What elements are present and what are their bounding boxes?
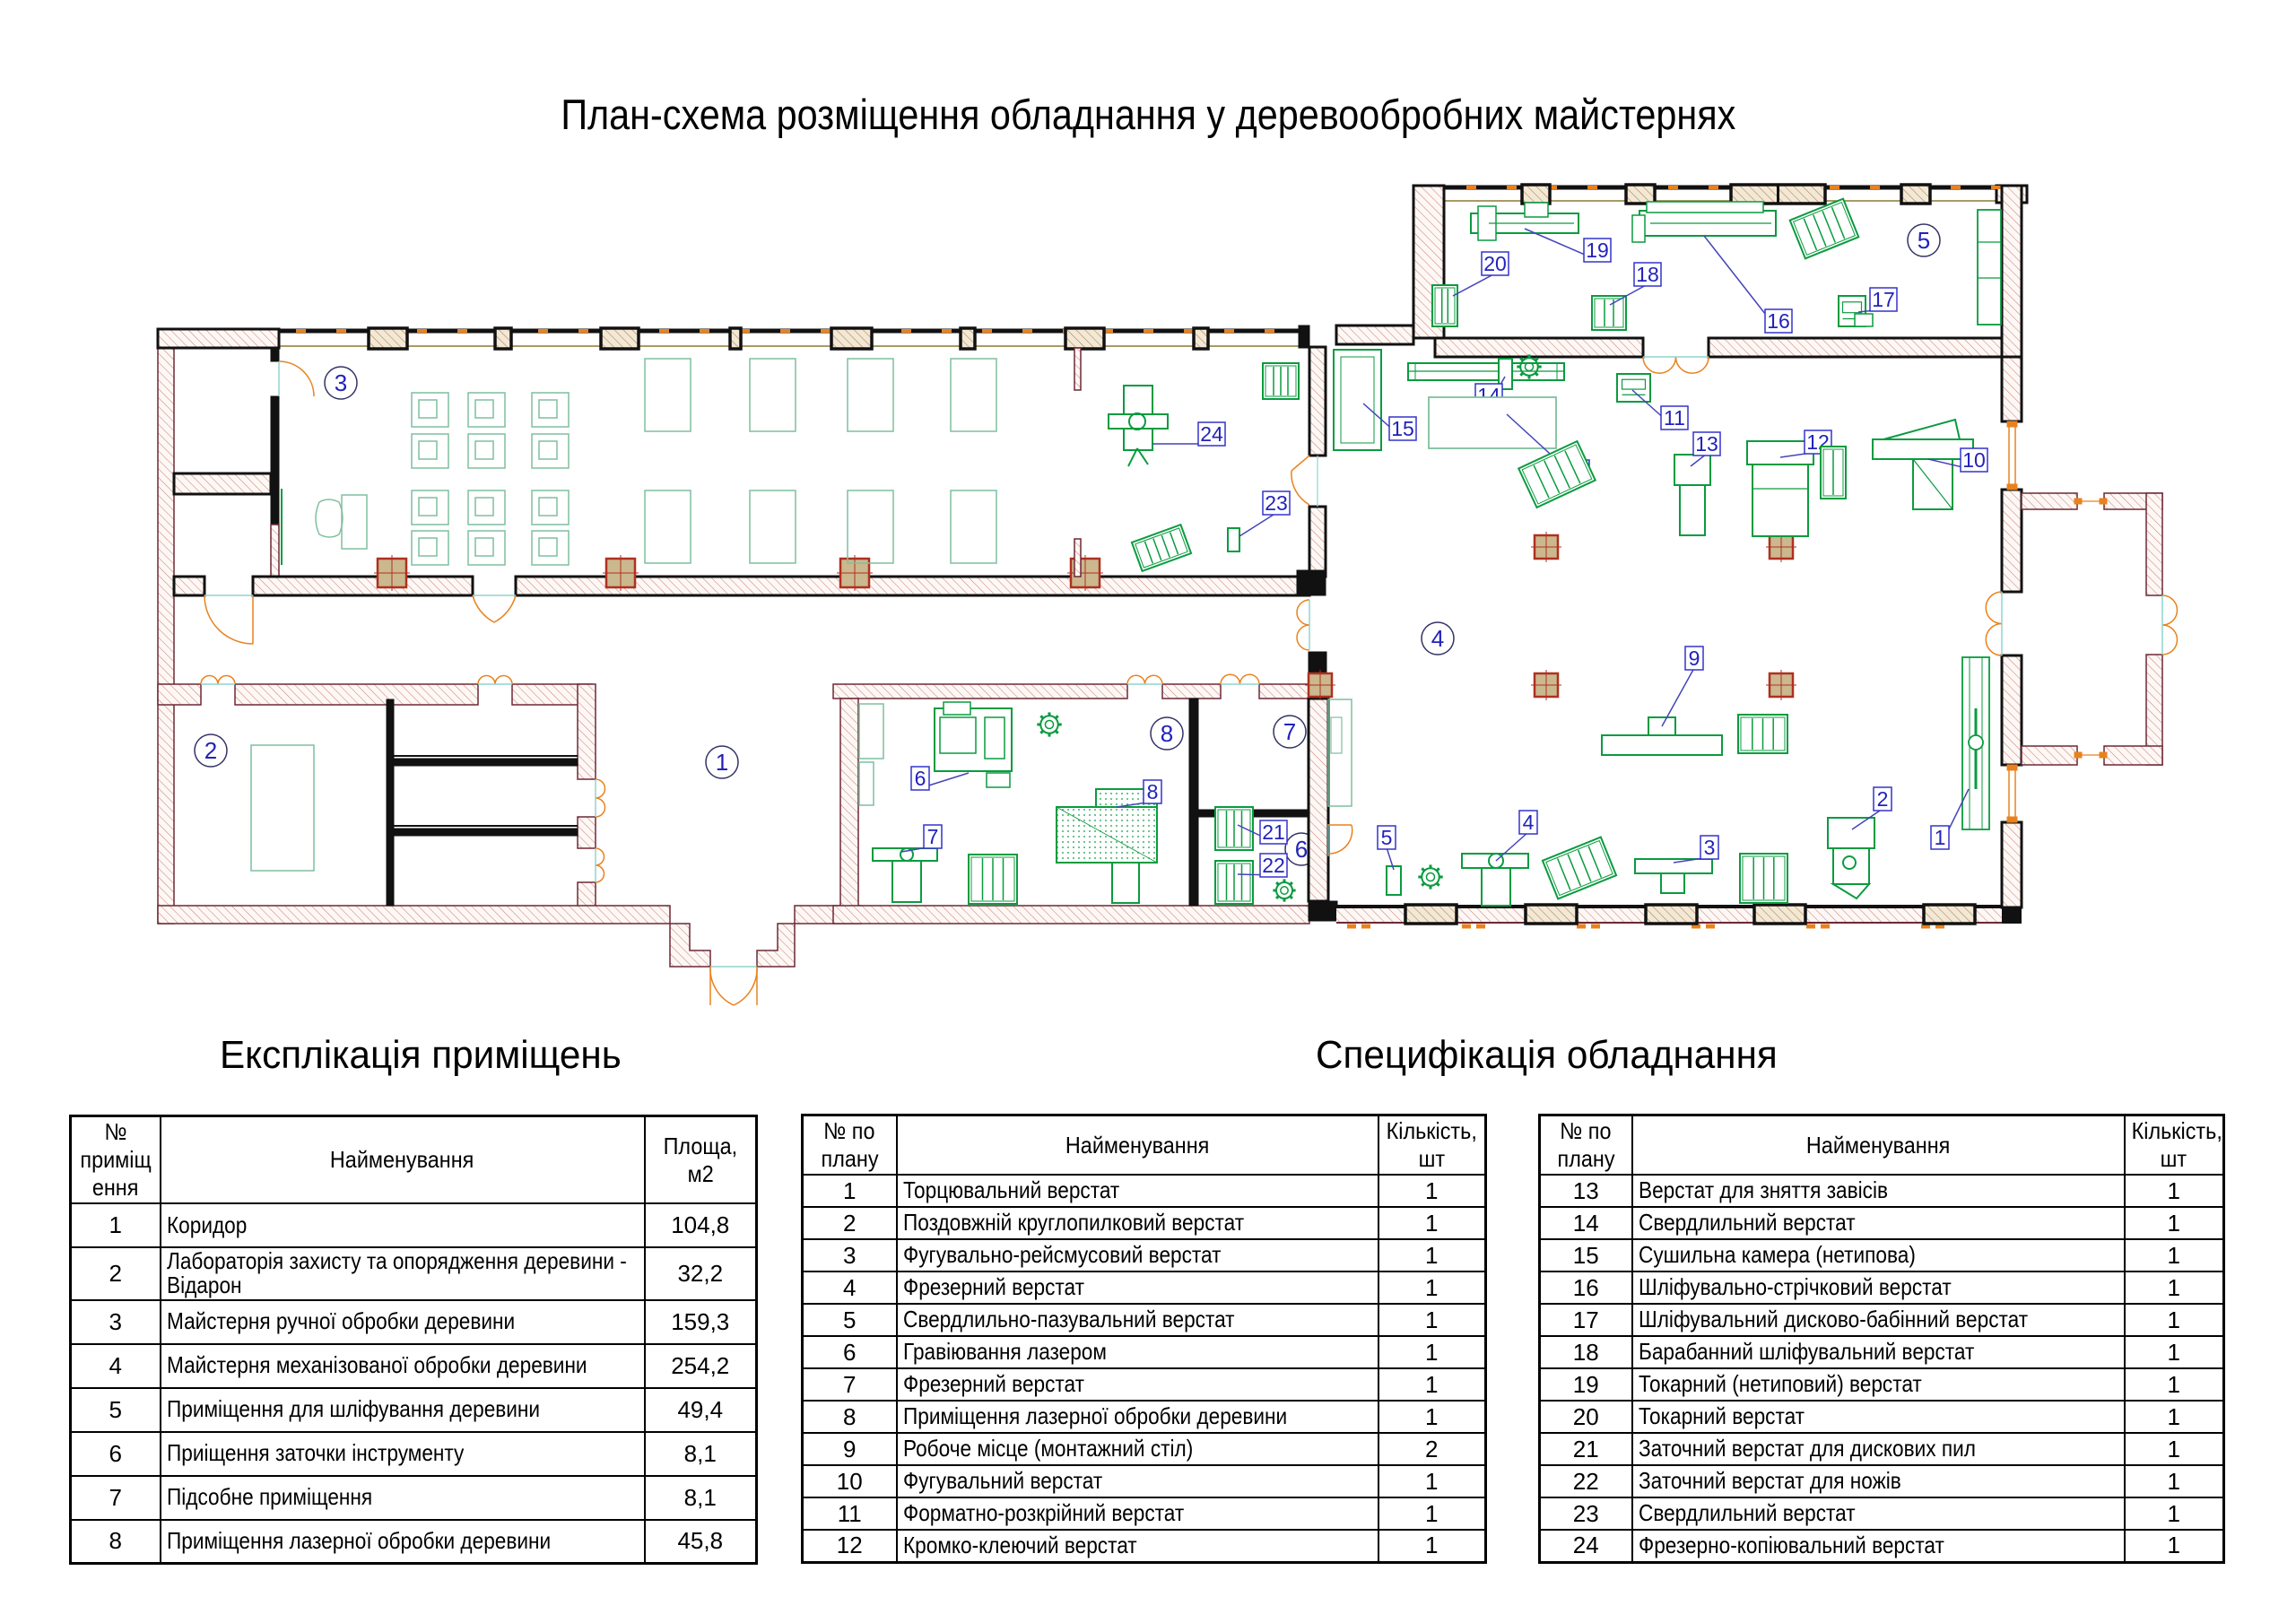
svg-text:9: 9 [1689, 647, 1700, 670]
svg-text:17: 17 [1872, 288, 1895, 311]
svg-text:24: 24 [1200, 422, 1223, 446]
svg-text:22: 22 [1262, 854, 1285, 877]
svg-text:18: 18 [1636, 263, 1659, 286]
svg-text:2: 2 [1877, 787, 1889, 811]
svg-text:1: 1 [716, 749, 728, 776]
svg-text:11: 11 [1664, 406, 1685, 430]
svg-text:3: 3 [1704, 836, 1716, 859]
svg-text:20: 20 [1483, 252, 1507, 275]
svg-text:10: 10 [1962, 448, 1986, 472]
svg-text:4: 4 [1431, 625, 1444, 652]
svg-text:19: 19 [1586, 239, 1609, 262]
svg-text:2: 2 [204, 737, 217, 764]
svg-text:3: 3 [335, 369, 347, 396]
svg-text:21: 21 [1262, 820, 1285, 844]
svg-text:15: 15 [1391, 417, 1414, 440]
svg-text:8: 8 [1161, 720, 1173, 747]
svg-text:7: 7 [927, 825, 939, 848]
svg-text:13: 13 [1695, 432, 1718, 456]
svg-text:23: 23 [1265, 491, 1288, 515]
svg-text:4: 4 [1523, 811, 1535, 834]
svg-text:6: 6 [1295, 836, 1308, 863]
svg-text:7: 7 [1283, 718, 1296, 745]
svg-text:16: 16 [1767, 309, 1790, 333]
svg-text:5: 5 [1918, 227, 1930, 254]
svg-text:8: 8 [1147, 780, 1159, 803]
svg-text:6: 6 [915, 767, 926, 790]
svg-text:5: 5 [1381, 826, 1393, 849]
svg-text:1: 1 [1935, 826, 1946, 849]
